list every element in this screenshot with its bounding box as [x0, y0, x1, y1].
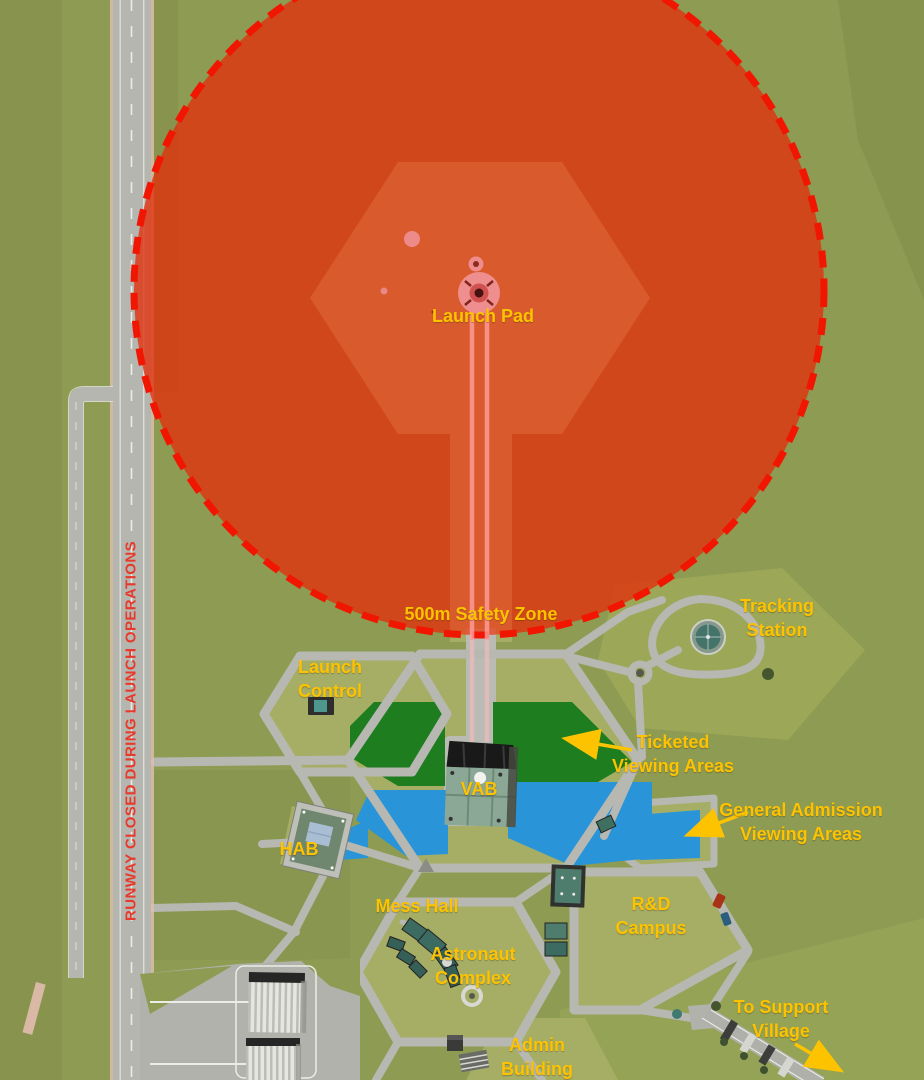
mess-hall-label: Mess Hall [375, 894, 458, 918]
general-admission-label: General Admission Viewing Areas [719, 798, 882, 846]
vab-label: VAB [461, 777, 498, 801]
hangar-building [248, 972, 307, 1033]
astronaut-complex-label: Astronaut Complex [431, 942, 516, 990]
support-village-label: To Support Village [734, 995, 829, 1043]
runway-closed-notice: RUNWAY CLOSED DURING LAUNCH OPERATIONS [123, 541, 140, 921]
rnd-campus-label: R&D Campus [615, 892, 686, 940]
hab-label: HAB [280, 837, 319, 861]
safety-zone-label: 500m Safety Zone [404, 602, 557, 626]
tracking-station-label: Tracking Station [740, 594, 814, 642]
launch-pad-label: Launch Pad [432, 304, 534, 328]
launch-control-label: Launch Control [298, 655, 362, 703]
admin-building-label: Admin Building [501, 1033, 573, 1080]
hangar-building [246, 1038, 301, 1080]
space-center-map: Launch Pad 500m Safety Zone Tracking Sta… [0, 0, 924, 1080]
ticketed-viewing-label: Ticketed Viewing Areas [612, 730, 734, 778]
